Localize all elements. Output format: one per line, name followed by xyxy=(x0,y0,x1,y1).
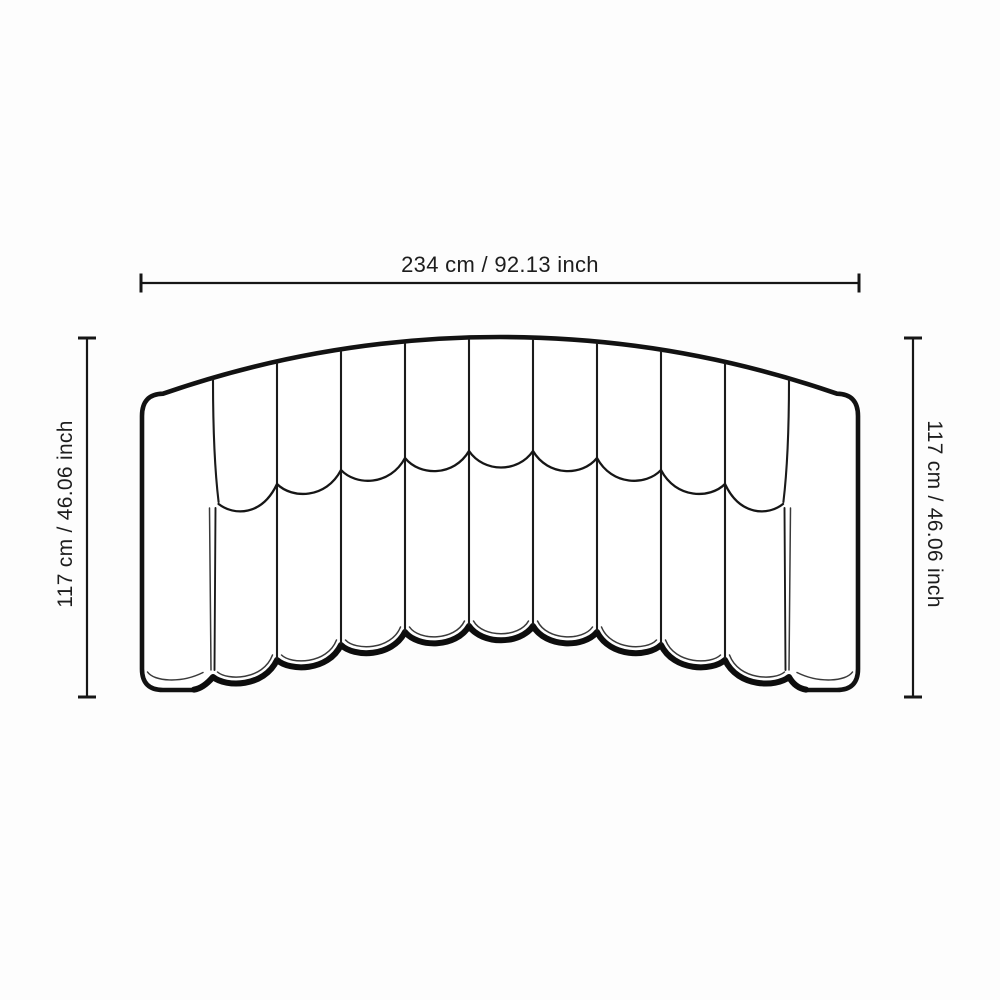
sofa-drawing xyxy=(142,337,858,690)
sofa-technical-drawing xyxy=(0,0,1000,1000)
left-arm-seam-line xyxy=(215,508,216,670)
dimension-diagram: 234 cm / 92.13 inch 117 cm / 46.06 inch … xyxy=(0,0,1000,1000)
width-dimension-label: 234 cm / 92.13 inch xyxy=(401,252,599,278)
sofa-outline xyxy=(142,337,858,690)
height-dimension-line-left xyxy=(78,338,96,697)
height-dimension-line-right xyxy=(904,338,922,697)
height-dimension-label-right: 117 cm / 46.06 inch xyxy=(922,420,946,607)
height-dimension-label-left: 117 cm / 46.06 inch xyxy=(54,420,78,607)
right-arm-seam-line xyxy=(785,508,786,670)
